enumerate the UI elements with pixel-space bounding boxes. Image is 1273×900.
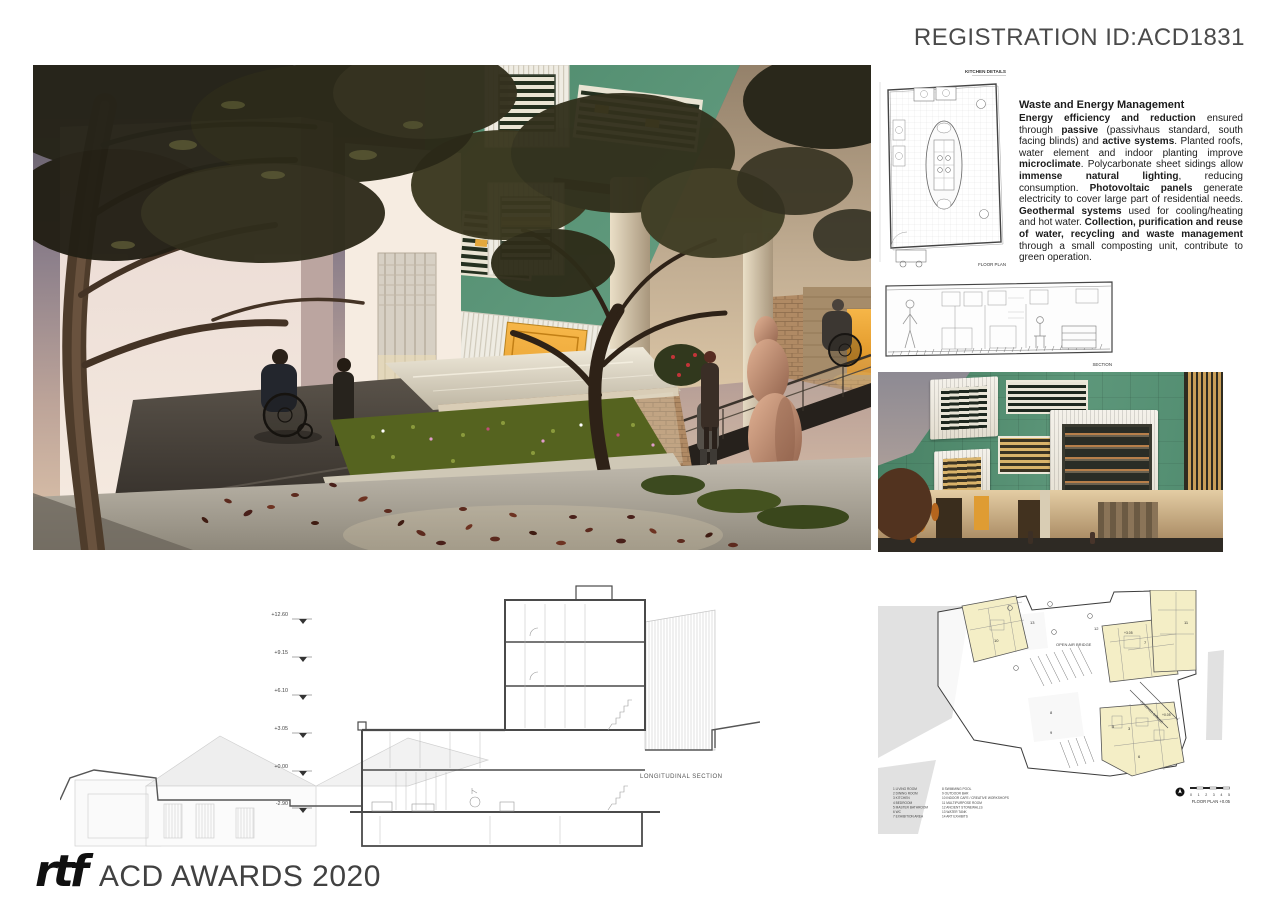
- facade-photo: [878, 372, 1223, 552]
- level-minus-2-90: -2.90: [276, 801, 288, 807]
- footer: rtf ACD AWARDS 2020: [35, 852, 381, 894]
- level-3-05: +3.05: [274, 726, 288, 732]
- award-title: ACD AWARDS 2020: [99, 860, 381, 894]
- longitudinal-section-drawing: +12.60 +9.15 +6.10 +3.05 +0.00 -2.90 LON…: [60, 580, 760, 850]
- floor-plan-caption: FLOOR PLAN +0.05: [1192, 799, 1231, 804]
- svg-text:13 WATER TANK: 13 WATER TANK: [942, 810, 968, 814]
- kitchen-section-drawing: SECTION: [880, 278, 1120, 370]
- svg-text:8 SWIMMING POOL: 8 SWIMMING POOL: [942, 787, 972, 791]
- svg-text:12 ANCIENT STONEWALLS: 12 ANCIENT STONEWALLS: [942, 805, 983, 809]
- svg-text:3 KITCHEN: 3 KITCHEN: [893, 796, 910, 800]
- louver-strip-top: [1006, 380, 1088, 414]
- level-12-60: +12.60: [271, 612, 288, 618]
- scale-bar: 0 1 2 3 4 5: [1190, 787, 1230, 797]
- level-9-15: +9.15: [274, 650, 288, 656]
- photo-column: [1040, 490, 1050, 544]
- svg-text:2 DINING ROOM: 2 DINING ROOM: [893, 792, 918, 796]
- level-tag-305: +3.05: [1124, 631, 1133, 635]
- scale-numbers: 0 1 2 3 4 5: [1190, 793, 1230, 797]
- registration-id: REGISTRATION ID:ACD1831: [914, 24, 1245, 52]
- svg-text:1 LIVING ROOM: 1 LIVING ROOM: [893, 787, 917, 791]
- dark-opening-a: [936, 498, 962, 538]
- photo-ground-strip: [878, 538, 1223, 552]
- louver-window-a: [941, 386, 987, 430]
- longitudinal-section-caption: LONGITUDINAL SECTION: [640, 774, 722, 780]
- svg-text:4 BEDROOM: 4 BEDROOM: [893, 801, 912, 805]
- svg-text:13: 13: [1030, 620, 1035, 625]
- svg-text:12: 12: [1094, 626, 1099, 631]
- photo-orange-door: [974, 496, 989, 530]
- open-air-bridge-label: OPEN AIR BRIDGE: [1056, 642, 1092, 647]
- white-box-a: [930, 376, 998, 440]
- svg-text:10: 10: [994, 638, 999, 643]
- kitchen-section-caption: SECTION: [1092, 362, 1112, 367]
- svg-text:5 MASTER BATHROOM: 5 MASTER BATHROOM: [893, 805, 928, 809]
- level-0-00: +0.00: [274, 764, 288, 770]
- energy-text-block: Waste and Energy Management Energy effic…: [1019, 99, 1243, 264]
- svg-text:9 OUTDOOR BAR: 9 OUTDOOR BAR: [942, 792, 969, 796]
- level-6-10: +6.10: [274, 688, 288, 694]
- ground-floor-plan: COVERED BRIDGE OPEN AIR BRIDGE +3.05 +0.…: [878, 590, 1248, 850]
- svg-text:7 EXHIBITION AREA: 7 EXHIBITION AREA: [893, 815, 924, 819]
- photo-person-a: [1028, 531, 1033, 544]
- courtyard-render: [33, 65, 871, 550]
- svg-text:11 MULTIPURPOSE ROOM: 11 MULTIPURPOSE ROOM: [942, 801, 982, 805]
- energy-paragraph: Energy efficiency and reduction ensured …: [1019, 113, 1243, 264]
- courtyard-render-art: [33, 65, 871, 550]
- svg-text:6 WC: 6 WC: [893, 810, 902, 814]
- kitchen-plan-title: KITCHEN DETAILS: [965, 69, 1006, 74]
- stone-texture: [1098, 502, 1158, 538]
- plan-legend: 1 LIVING ROOM 2 DINING ROOM 3 KITCHEN 4 …: [893, 787, 1009, 819]
- energy-heading: Waste and Energy Management: [1019, 99, 1243, 112]
- rtf-logo: rtf: [35, 852, 85, 892]
- svg-text:14 ART EXHIBITS: 14 ART EXHIBITS: [942, 815, 968, 819]
- kitchen-plan-caption: FLOOR PLAN: [978, 262, 1006, 267]
- svg-text:10 INDOOR CAFE / CREATIVE WOR: 10 INDOOR CAFE / CREATIVE WORKSHOPS: [942, 796, 1009, 800]
- rose-bush: [654, 344, 708, 386]
- presentation-board: REGISTRATION ID:ACD1831: [0, 0, 1273, 900]
- level-tag-005: +0.05: [1162, 713, 1171, 717]
- kitchen-floor-plan: KITCHEN DETAILS FLOOR PLAN: [878, 62, 1013, 272]
- photo-person-b: [1090, 532, 1095, 544]
